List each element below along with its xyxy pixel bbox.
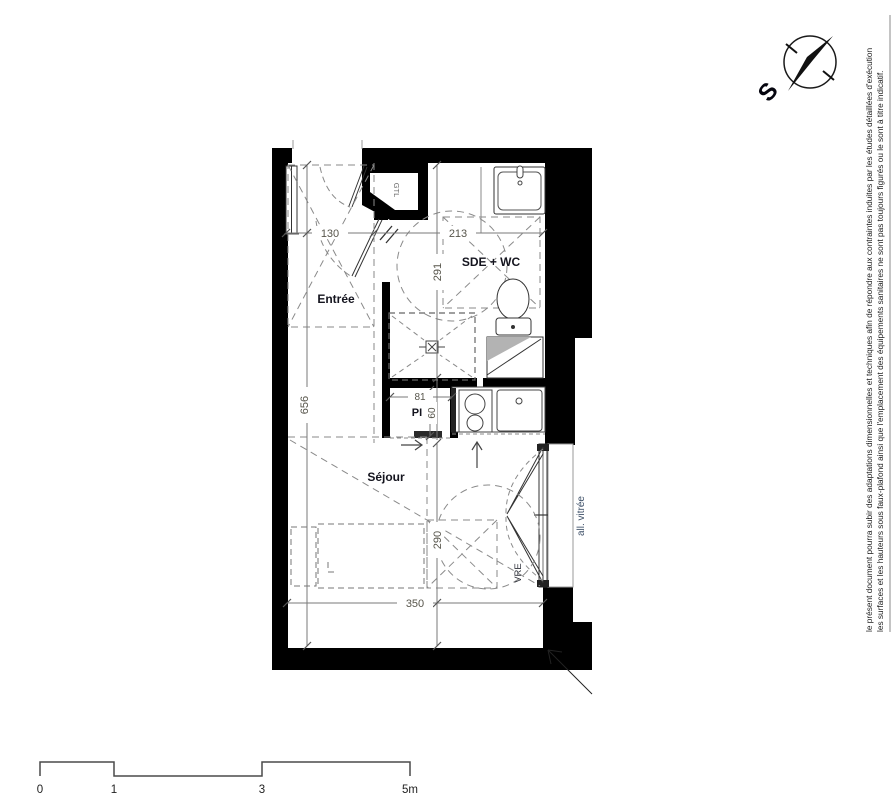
bathroom-sink — [481, 166, 545, 233]
compass: S — [753, 36, 836, 107]
technical-shaft — [487, 337, 543, 378]
scale-label-0: 0 — [37, 784, 43, 796]
scale-bar: 0 1 3 5m — [37, 762, 418, 796]
dim-sejour-width: 350 — [406, 598, 424, 610]
dim-total-height: 656 — [299, 396, 311, 414]
bed-outline — [291, 524, 424, 588]
compass-south-label: S — [753, 77, 784, 107]
scale-label-3: 3 — [259, 784, 265, 796]
scale-label-1: 1 — [111, 784, 117, 796]
entry-threshold-lines — [293, 140, 362, 149]
left-window — [284, 166, 299, 234]
shower-drain-icon — [419, 341, 445, 353]
floor-plan-drawing: 130 213 656 291 290 350 81 60 Entrée SDE… — [0, 0, 892, 800]
scale-label-5m: 5m — [402, 784, 418, 796]
kitchenette — [452, 387, 545, 434]
gtl-label: GTL — [392, 183, 401, 198]
dim-sejour-height: 290 — [432, 531, 444, 549]
entry-door — [320, 166, 367, 207]
room-label-sejour: Séjour — [367, 470, 405, 484]
disclaimer-text: le présent document pourra subir des ada… — [864, 15, 890, 632]
shower — [389, 313, 475, 380]
circulation-arrows — [401, 440, 482, 468]
dim-entree-width: 130 — [321, 228, 339, 240]
disclaimer-line-2: les surfaces et les hauteurs sous faux-p… — [875, 71, 885, 632]
dim-sde-height: 291 — [432, 263, 444, 281]
disclaimer-line-1: le présent document pourra subir des ada… — [864, 47, 874, 632]
dim-closet-depth: 60 — [427, 407, 438, 419]
room-label-sde-wc: SDE + WC — [462, 255, 521, 269]
floor-plan-page: 130 213 656 291 290 350 81 60 Entrée SDE… — [0, 0, 892, 800]
entree-clearance-lines — [288, 163, 427, 590]
room-label-closet: PI — [412, 407, 422, 419]
dim-sde-width: 213 — [449, 228, 467, 240]
toilet — [496, 279, 531, 335]
room-label-entree: Entrée — [317, 292, 355, 306]
glazed-sill-label: all. vitrée — [576, 496, 587, 536]
dim-closet-width: 81 — [414, 392, 426, 403]
vre-label: VRE — [513, 563, 524, 583]
